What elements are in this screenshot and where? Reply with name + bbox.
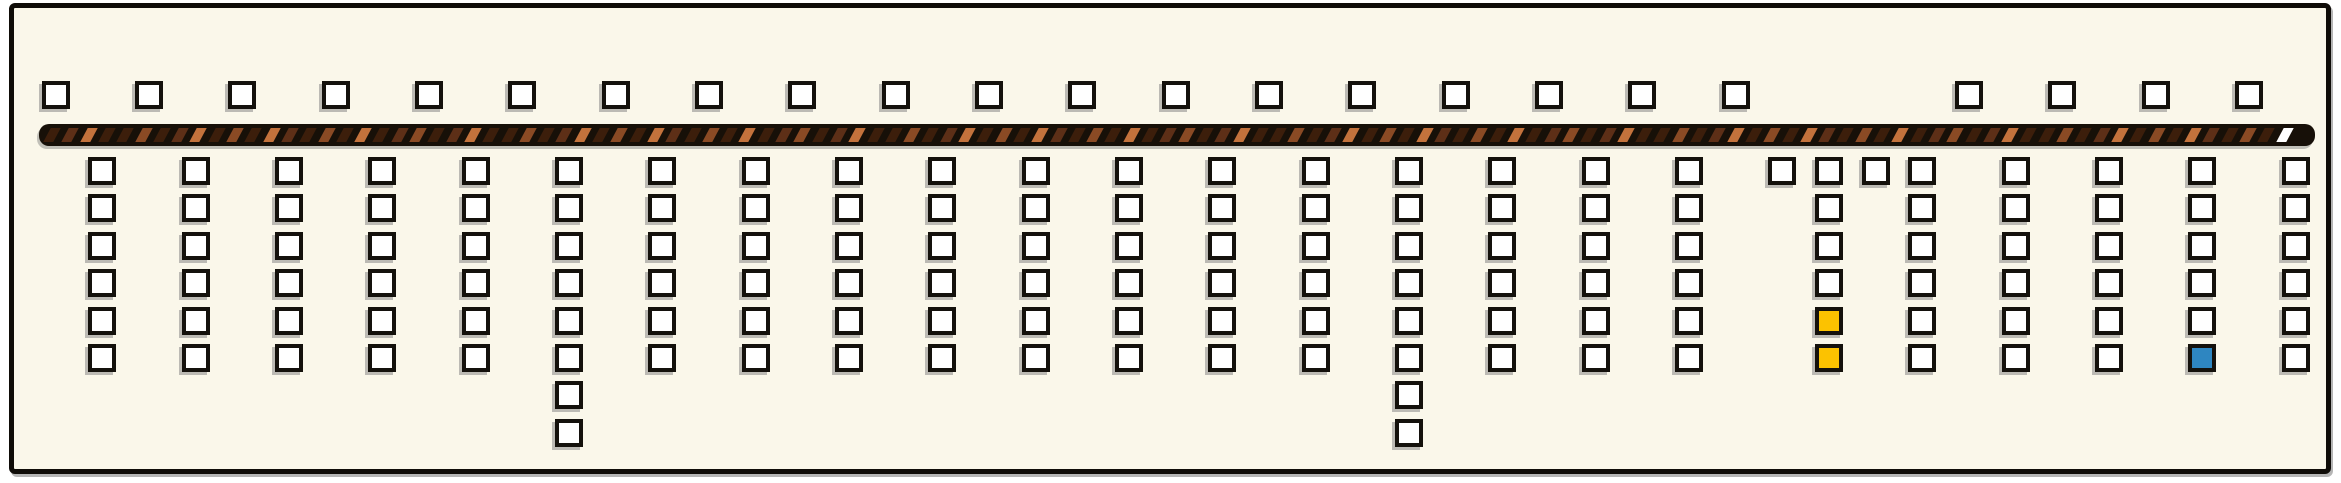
grid-square[interactable]	[742, 344, 770, 372]
top-slot-square[interactable]	[1955, 81, 1983, 109]
grid-square[interactable]	[1022, 344, 1050, 372]
bar-stripe	[1471, 128, 1488, 142]
grid-square[interactable]	[1395, 381, 1423, 409]
grid-square-yellow[interactable]	[1815, 307, 1843, 335]
grid-square[interactable]	[368, 344, 396, 372]
bar-stripe	[1452, 128, 1469, 142]
bar-stripe	[2075, 128, 2092, 142]
bar-stripe	[190, 128, 207, 142]
bar-stripe	[1580, 128, 1597, 142]
grid-square[interactable]	[555, 419, 583, 447]
bar-stripe	[629, 128, 646, 142]
bar-stripe	[2203, 128, 2220, 142]
top-slot-square[interactable]	[415, 81, 443, 109]
diagram-board	[9, 3, 2331, 474]
bar-stripe	[1160, 128, 1177, 142]
grid-square[interactable]	[1488, 269, 1516, 297]
bar-stripe	[263, 128, 280, 142]
grid-square[interactable]	[88, 269, 116, 297]
bar-stripe	[537, 128, 554, 142]
grid-square[interactable]	[648, 344, 676, 372]
grid-square[interactable]	[2095, 157, 2123, 185]
top-slot-square[interactable]	[1255, 81, 1283, 109]
grid-square[interactable]	[1395, 157, 1423, 185]
grid-square[interactable]	[1908, 344, 1936, 372]
bar-stripe	[1782, 128, 1799, 142]
grid-square[interactable]	[1395, 344, 1423, 372]
top-slot-square[interactable]	[1162, 81, 1190, 109]
bar-stripe	[1086, 128, 1103, 142]
grid-square[interactable]	[2188, 194, 2216, 222]
bar-stripe	[1928, 128, 1945, 142]
bar-stripe	[281, 128, 298, 142]
grid-square[interactable]	[835, 307, 863, 335]
bar-stripe	[1544, 128, 1561, 142]
bar-stripe	[592, 128, 609, 142]
bar-stripe	[354, 128, 371, 142]
grid-square[interactable]	[1815, 157, 1843, 185]
grid-square[interactable]	[1582, 307, 1610, 335]
bar-stripe	[1910, 128, 1927, 142]
bar-stripe	[464, 128, 481, 142]
bar-stripe	[1818, 128, 1835, 142]
bar-stripe	[2093, 128, 2110, 142]
bar-stripe	[519, 128, 536, 142]
bar-stripe	[1800, 128, 1817, 142]
bar-stripe	[574, 128, 591, 142]
grid-square[interactable]	[648, 307, 676, 335]
bar-stripe	[373, 128, 390, 142]
bar-stripe	[171, 128, 188, 142]
bar-stripe	[1233, 128, 1250, 142]
grid-square[interactable]	[1115, 157, 1143, 185]
grid-square[interactable]	[462, 194, 490, 222]
grid-square[interactable]	[742, 194, 770, 222]
bar-stripe	[1672, 128, 1689, 142]
bar-stripe	[1654, 128, 1671, 142]
grid-square[interactable]	[1488, 344, 1516, 372]
grid-square[interactable]	[1908, 232, 1936, 260]
grid-square[interactable]	[88, 194, 116, 222]
bar-stripe	[922, 128, 939, 142]
grid-square[interactable]	[648, 194, 676, 222]
top-slot-square[interactable]	[2235, 81, 2263, 109]
grid-square[interactable]	[928, 232, 956, 260]
grid-square[interactable]	[182, 269, 210, 297]
grid-square[interactable]	[275, 157, 303, 185]
grid-square-blue[interactable]	[2188, 344, 2216, 372]
top-slot-square[interactable]	[228, 81, 256, 109]
bar-stripe	[1269, 128, 1286, 142]
grid-square[interactable]	[275, 344, 303, 372]
grid-square[interactable]	[1208, 194, 1236, 222]
bar-end-white-segment	[2276, 128, 2293, 142]
grid-square[interactable]	[1908, 194, 1936, 222]
grid-square[interactable]	[2095, 307, 2123, 335]
grid-square[interactable]	[1488, 194, 1516, 222]
grid-square[interactable]	[2095, 232, 2123, 260]
grid-square[interactable]	[462, 157, 490, 185]
grid-square[interactable]	[1115, 269, 1143, 297]
grid-square[interactable]	[1675, 269, 1703, 297]
bar-stripe	[1416, 128, 1433, 142]
grid-square[interactable]	[2282, 194, 2310, 222]
bar-stripe	[2166, 128, 2183, 142]
top-slot-square[interactable]	[2048, 81, 2076, 109]
grid-square[interactable]	[742, 269, 770, 297]
grid-square[interactable]	[462, 269, 490, 297]
grid-square[interactable]	[1022, 232, 1050, 260]
grid-square[interactable]	[742, 307, 770, 335]
grid-square[interactable]	[1815, 232, 1843, 260]
grid-square[interactable]	[648, 269, 676, 297]
grid-square[interactable]	[1582, 232, 1610, 260]
grid-square[interactable]	[1908, 269, 1936, 297]
grid-square[interactable]	[1675, 307, 1703, 335]
grid-square[interactable]	[555, 307, 583, 335]
bar-stripe	[903, 128, 920, 142]
grid-square[interactable]	[182, 307, 210, 335]
bar-stripe	[812, 128, 829, 142]
bar-stripe	[2148, 128, 2165, 142]
grid-square[interactable]	[555, 344, 583, 372]
grid-square[interactable]	[835, 269, 863, 297]
grid-square[interactable]	[2002, 194, 2030, 222]
grid-square[interactable]	[1675, 232, 1703, 260]
hatched-timeline-bar	[39, 124, 2315, 146]
bar-stripe	[1946, 128, 1963, 142]
grid-square[interactable]	[462, 307, 490, 335]
bar-stripe	[720, 128, 737, 142]
bar-stripe	[739, 128, 756, 142]
grid-square[interactable]	[648, 232, 676, 260]
grid-square[interactable]	[2282, 157, 2310, 185]
bar-stripe	[1324, 128, 1341, 142]
grid-square[interactable]	[1208, 232, 1236, 260]
bar-stripe	[2111, 128, 2128, 142]
grid-square[interactable]	[368, 157, 396, 185]
grid-square[interactable]	[2002, 269, 2030, 297]
bar-stripe	[482, 128, 499, 142]
bar-stripe	[1709, 128, 1726, 142]
grid-square[interactable]	[1115, 344, 1143, 372]
bar-stripe	[1361, 128, 1378, 142]
bar-stripe	[775, 128, 792, 142]
bar-stripe	[98, 128, 115, 142]
bar-stripe	[391, 128, 408, 142]
grid-square[interactable]	[368, 269, 396, 297]
bar-stripe	[977, 128, 994, 142]
top-slot-square[interactable]	[1535, 81, 1563, 109]
grid-square[interactable]	[1862, 157, 1890, 185]
bar-stripe	[2221, 128, 2238, 142]
grid-square[interactable]	[368, 194, 396, 222]
top-slot-square[interactable]	[882, 81, 910, 109]
grid-square[interactable]	[928, 157, 956, 185]
bar-stripe	[702, 128, 719, 142]
grid-square[interactable]	[555, 194, 583, 222]
grid-square[interactable]	[2095, 344, 2123, 372]
bar-stripe	[226, 128, 243, 142]
grid-square[interactable]	[1115, 232, 1143, 260]
grid-square[interactable]	[555, 232, 583, 260]
bar-stripe	[958, 128, 975, 142]
grid-square[interactable]	[2188, 232, 2216, 260]
grid-square[interactable]	[1815, 194, 1843, 222]
bar-stripe	[830, 128, 847, 142]
bar-stripe	[153, 128, 170, 142]
grid-square[interactable]	[1908, 157, 1936, 185]
grid-square[interactable]	[1022, 307, 1050, 335]
bar-stripe	[1507, 128, 1524, 142]
grid-square[interactable]	[1675, 194, 1703, 222]
bar-stripe	[867, 128, 884, 142]
grid-square[interactable]	[1208, 157, 1236, 185]
bar-stripe	[1031, 128, 1048, 142]
grid-square[interactable]	[1022, 269, 1050, 297]
bar-stripe	[208, 128, 225, 142]
grid-square[interactable]	[2282, 307, 2310, 335]
bar-stripe	[1690, 128, 1707, 142]
grid-square[interactable]	[2002, 157, 2030, 185]
grid-square[interactable]	[182, 157, 210, 185]
top-slot-square[interactable]	[788, 81, 816, 109]
bar-stripe	[1727, 128, 1744, 142]
grid-square[interactable]	[1395, 269, 1423, 297]
bar-stripe	[501, 128, 518, 142]
grid-square[interactable]	[462, 232, 490, 260]
bar-stripe	[446, 128, 463, 142]
bar-stripe	[1434, 128, 1451, 142]
grid-square[interactable]	[835, 157, 863, 185]
grid-square[interactable]	[1208, 307, 1236, 335]
bar-stripe	[995, 128, 1012, 142]
top-slot-square[interactable]	[975, 81, 1003, 109]
grid-square[interactable]	[1395, 307, 1423, 335]
grid-square[interactable]	[1488, 157, 1516, 185]
grid-square[interactable]	[1488, 307, 1516, 335]
grid-square[interactable]	[1302, 157, 1330, 185]
grid-square[interactable]	[1675, 157, 1703, 185]
bar-stripe	[1050, 128, 1067, 142]
grid-square[interactable]	[88, 307, 116, 335]
grid-square[interactable]	[1302, 344, 1330, 372]
timeline-slot-diagram: { "board": { "background": "#faf7ea", "b…	[0, 0, 2341, 483]
grid-square[interactable]	[88, 157, 116, 185]
bar-stripe	[940, 128, 957, 142]
grid-square[interactable]	[928, 307, 956, 335]
bar-stripe	[665, 128, 682, 142]
grid-square[interactable]	[835, 344, 863, 372]
bar-stripe	[1196, 128, 1213, 142]
grid-square[interactable]	[555, 381, 583, 409]
bar-stripe	[2001, 128, 2018, 142]
grid-square[interactable]	[2282, 232, 2310, 260]
bar-stripe	[1599, 128, 1616, 142]
bar-stripe	[1178, 128, 1195, 142]
top-slot-square[interactable]	[1348, 81, 1376, 109]
bar-stripe	[848, 128, 865, 142]
grid-square[interactable]	[1908, 307, 1936, 335]
grid-square[interactable]	[88, 232, 116, 260]
top-slot-square[interactable]	[1068, 81, 1096, 109]
bar-stripe	[556, 128, 573, 142]
grid-square-yellow[interactable]	[1815, 344, 1843, 372]
grid-square[interactable]	[1302, 307, 1330, 335]
grid-square[interactable]	[1208, 269, 1236, 297]
bar-stripe	[684, 128, 701, 142]
grid-square[interactable]	[275, 307, 303, 335]
bar-stripe	[1343, 128, 1360, 142]
grid-square[interactable]	[1395, 419, 1423, 447]
bar-stripe	[1617, 128, 1634, 142]
bar-stripe	[1526, 128, 1543, 142]
bar-stripe	[428, 128, 445, 142]
top-slot-square[interactable]	[135, 81, 163, 109]
grid-square[interactable]	[1022, 194, 1050, 222]
grid-square[interactable]	[1768, 157, 1796, 185]
grid-square[interactable]	[1815, 269, 1843, 297]
grid-square[interactable]	[648, 157, 676, 185]
grid-square[interactable]	[2282, 269, 2310, 297]
bar-stripe	[885, 128, 902, 142]
bar-stripe	[1214, 128, 1231, 142]
bar-stripe	[1251, 128, 1268, 142]
bar-stripe	[1763, 128, 1780, 142]
bar-stripe	[2239, 128, 2256, 142]
bar-stripe	[1013, 128, 1030, 142]
grid-square[interactable]	[742, 232, 770, 260]
grid-square[interactable]	[1582, 344, 1610, 372]
grid-square[interactable]	[1582, 194, 1610, 222]
grid-square[interactable]	[275, 269, 303, 297]
bar-stripe	[1965, 128, 1982, 142]
grid-square[interactable]	[88, 344, 116, 372]
bar-stripe	[2038, 128, 2055, 142]
bar-stripe	[1562, 128, 1579, 142]
bar-stripe	[1635, 128, 1652, 142]
grid-square[interactable]	[1022, 157, 1050, 185]
grid-square[interactable]	[368, 307, 396, 335]
bar-stripe	[62, 128, 79, 142]
top-slot-square[interactable]	[1722, 81, 1750, 109]
bar-stripe	[1397, 128, 1414, 142]
bar-stripe	[1855, 128, 1872, 142]
grid-square[interactable]	[275, 194, 303, 222]
bar-stripe	[1489, 128, 1506, 142]
bar-stripe	[2184, 128, 2201, 142]
bar-stripe	[116, 128, 133, 142]
top-slot-square[interactable]	[1442, 81, 1470, 109]
grid-square[interactable]	[1582, 269, 1610, 297]
bar-stripe	[43, 128, 60, 142]
bar-stripe	[1745, 128, 1762, 142]
grid-square[interactable]	[928, 269, 956, 297]
bar-stripe	[1306, 128, 1323, 142]
grid-square[interactable]	[1395, 194, 1423, 222]
grid-square[interactable]	[368, 232, 396, 260]
bar-stripe	[1068, 128, 1085, 142]
grid-square[interactable]	[2095, 194, 2123, 222]
grid-square[interactable]	[555, 269, 583, 297]
grid-square[interactable]	[2002, 307, 2030, 335]
grid-square[interactable]	[2188, 269, 2216, 297]
grid-square[interactable]	[1208, 344, 1236, 372]
grid-square[interactable]	[2002, 232, 2030, 260]
bar-stripe	[318, 128, 335, 142]
grid-square[interactable]	[835, 194, 863, 222]
grid-square[interactable]	[1302, 232, 1330, 260]
bar-stripe	[794, 128, 811, 142]
top-slot-square[interactable]	[602, 81, 630, 109]
bar-stripe	[1288, 128, 1305, 142]
grid-square[interactable]	[2282, 344, 2310, 372]
top-slot-square[interactable]	[508, 81, 536, 109]
grid-square[interactable]	[182, 232, 210, 260]
bar-stripe	[1837, 128, 1854, 142]
bar-stripe	[245, 128, 262, 142]
grid-square[interactable]	[182, 344, 210, 372]
bar-stripe	[757, 128, 774, 142]
bar-stripe	[2020, 128, 2037, 142]
bar-stripe	[336, 128, 353, 142]
grid-square[interactable]	[1115, 307, 1143, 335]
bar-stripe	[409, 128, 426, 142]
top-slot-square[interactable]	[322, 81, 350, 109]
bar-stripe	[1983, 128, 2000, 142]
grid-square[interactable]	[2095, 269, 2123, 297]
grid-square[interactable]	[555, 157, 583, 185]
grid-square[interactable]	[1395, 232, 1423, 260]
bar-stripe	[2258, 128, 2275, 142]
bar-stripe	[135, 128, 152, 142]
bar-stripe	[611, 128, 628, 142]
bar-stripe	[80, 128, 97, 142]
bar-stripe	[1873, 128, 1890, 142]
grid-square[interactable]	[462, 344, 490, 372]
grid-square[interactable]	[2188, 157, 2216, 185]
grid-square[interactable]	[928, 344, 956, 372]
bar-stripe	[1892, 128, 1909, 142]
grid-square[interactable]	[1582, 157, 1610, 185]
top-slot-square[interactable]	[1628, 81, 1656, 109]
bar-stripe	[299, 128, 316, 142]
grid-square[interactable]	[182, 194, 210, 222]
bar-stripe	[1379, 128, 1396, 142]
grid-square[interactable]	[1302, 194, 1330, 222]
top-slot-square[interactable]	[2142, 81, 2170, 109]
bar-stripe	[647, 128, 664, 142]
bar-stripe	[1141, 128, 1158, 142]
bar-stripe	[1105, 128, 1122, 142]
bar-stripe	[1123, 128, 1140, 142]
grid-square[interactable]	[1115, 194, 1143, 222]
grid-square[interactable]	[742, 157, 770, 185]
bar-stripe	[2056, 128, 2073, 142]
grid-square[interactable]	[928, 194, 956, 222]
top-slot-square[interactable]	[42, 81, 70, 109]
grid-square[interactable]	[1488, 232, 1516, 260]
grid-square[interactable]	[2188, 307, 2216, 335]
grid-square[interactable]	[1302, 269, 1330, 297]
grid-square[interactable]	[2002, 344, 2030, 372]
grid-square[interactable]	[275, 232, 303, 260]
top-slot-square[interactable]	[695, 81, 723, 109]
grid-square[interactable]	[835, 232, 863, 260]
grid-square[interactable]	[1675, 344, 1703, 372]
bar-stripe	[2129, 128, 2146, 142]
